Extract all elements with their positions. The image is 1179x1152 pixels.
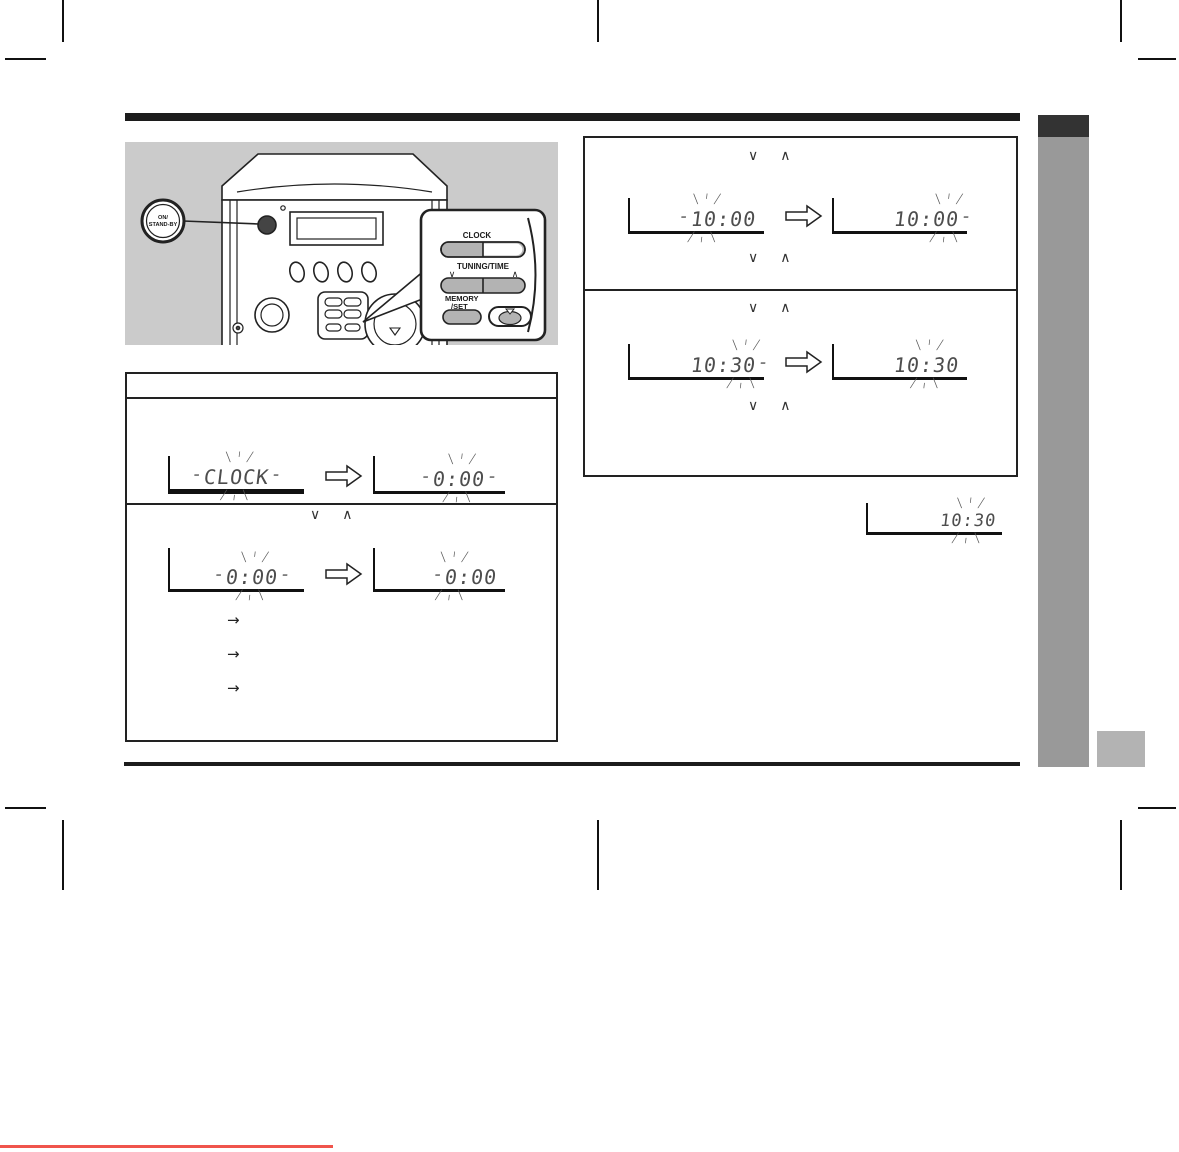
lcd-display-result: 10:30 [866,503,1002,535]
option-bullet-arrow: → [227,611,240,629]
power-label-line1: ON/ [158,215,168,221]
transition-arrow-icon [325,562,363,586]
on-standby-button-icon [142,200,184,242]
memory-set-button-icon [443,310,481,324]
manual-page: ON/ STAND-BY CLOCK TUNING/TIME ∨ ∧ MEMOR… [0,0,1179,1152]
remote-down-chevron: ∨ [449,269,456,279]
transition-arrow-icon [325,464,363,488]
enter-button-icon [489,307,531,326]
panel-divider [127,397,556,399]
section-title-rule [125,113,1020,121]
lcd-display: 10:00 [832,198,967,234]
lcd-display: 0:00 [373,456,505,494]
chapter-tab-dark [1038,115,1089,137]
power-label-line2: STAND-BY [149,222,178,228]
lcd-display: 10:30 [628,344,764,380]
crop-mark [1138,58,1176,60]
right-steps-panel-1: ∨ ∧ 10:00 10:00 ∨ ∧ [583,136,1018,291]
tuning-time-button-icon [441,278,525,293]
crop-mark [62,0,64,42]
crop-mark [62,820,64,890]
crop-mark [1120,0,1122,42]
tuning-chevrons: ∨ ∧ [748,300,791,316]
clock-button-label: CLOCK [463,231,492,240]
transition-arrow-icon [785,350,823,374]
panel-divider [127,503,556,505]
unit-power-button-icon [258,216,276,234]
up-chevron: ∧ [342,507,352,523]
lcd-display: 0:00 [373,548,505,592]
up-chevron: ∧ [780,300,790,316]
crop-mark [1120,820,1122,890]
crop-mark [1138,807,1176,809]
down-chevron: ∨ [310,507,320,523]
tuning-chevrons: ∨ ∧ [310,507,353,523]
remote-up-chevron: ∧ [512,269,519,279]
down-chevron: ∨ [748,148,758,164]
footer-rule [124,762,1020,766]
right-steps-panel-2: ∨ ∧ 10:30 10:30 ∨ ∧ [583,289,1018,477]
tuning-chevrons: ∨ ∧ [748,148,791,164]
lcd-display: CLOCK [168,456,304,494]
lcd-display: 0:00 [168,548,304,592]
down-chevron: ∨ [748,250,758,266]
clock-button-icon [441,242,525,257]
red-marker-line [0,1145,333,1148]
chapter-sidebar [1038,137,1089,767]
down-chevron: ∨ [748,398,758,414]
crop-mark [5,807,46,809]
left-steps-panel: CLOCK 0:00 ∨ ∧ 0:00 0:00 → → → [125,372,558,742]
transition-arrow-icon [785,204,823,228]
down-chevron: ∨ [748,300,758,316]
lcd-display: 10:30 [832,344,967,380]
page-number-tab [1097,731,1145,767]
set-label: /SET [451,302,468,311]
crop-mark [597,0,599,42]
tuning-time-label: TUNING/TIME [457,262,510,271]
up-chevron: ∧ [780,148,790,164]
option-bullet-arrow: → [227,645,240,663]
crop-mark [5,58,46,60]
option-bullet-arrow: → [227,679,240,697]
crop-mark [597,820,599,890]
up-chevron: ∧ [780,398,790,414]
device-illustration-box: ON/ STAND-BY CLOCK TUNING/TIME ∨ ∧ MEMOR… [125,142,558,345]
tuning-chevrons: ∨ ∧ [748,250,791,266]
stereo-unit-illustration: ON/ STAND-BY CLOCK TUNING/TIME ∨ ∧ MEMOR… [125,142,558,345]
tuning-chevrons: ∨ ∧ [748,398,791,414]
remote-inset [421,210,545,340]
up-chevron: ∧ [780,250,790,266]
lcd-display: 10:00 [628,198,764,234]
